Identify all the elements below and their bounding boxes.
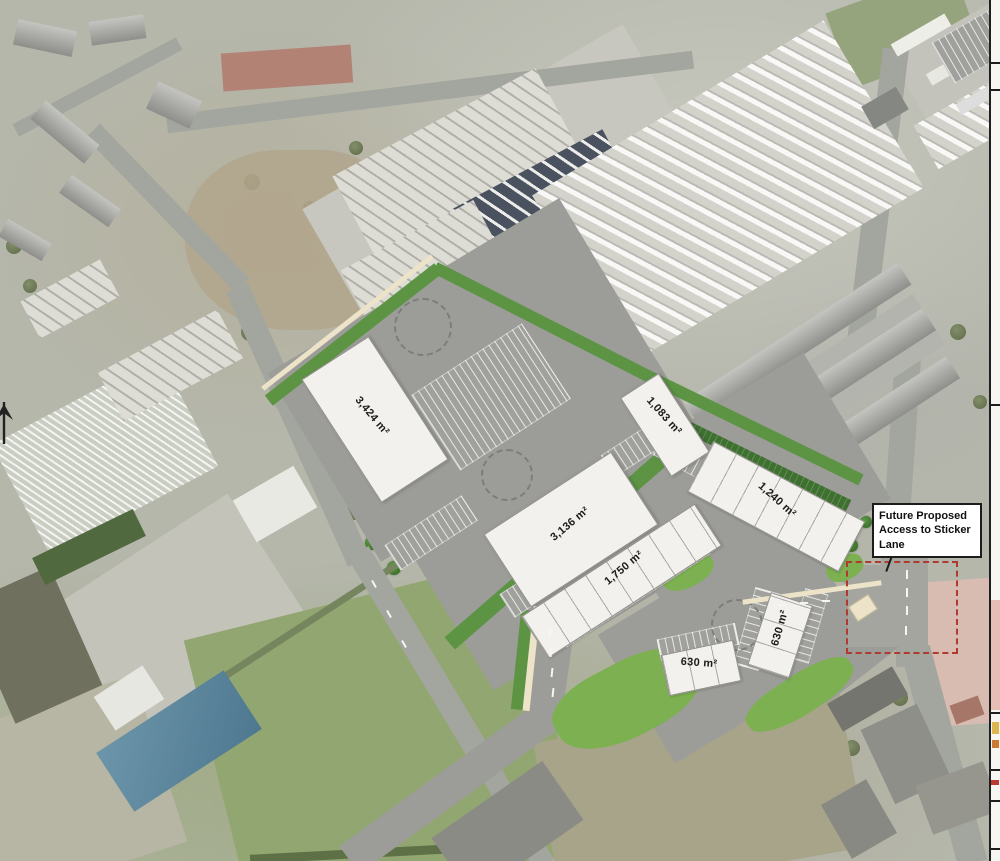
- tree: [973, 395, 987, 409]
- legend-swatch: [991, 780, 999, 785]
- legend-divider: [989, 848, 1000, 850]
- legend-divider: [989, 769, 1000, 771]
- legend-divider: [989, 62, 1000, 64]
- proposed-access-boundary: [846, 561, 958, 654]
- legend-swatch: [992, 740, 999, 748]
- north-arrow-icon: [0, 400, 17, 446]
- road-marking: [822, 600, 830, 602]
- legend-swatch: [991, 600, 1000, 710]
- turning-circle: [481, 449, 533, 501]
- legend-divider: [989, 404, 1000, 406]
- legend-swatch: [992, 722, 999, 734]
- future-access-annotation: Future Proposed Access to Sticker Lane: [872, 503, 982, 558]
- tree: [23, 279, 37, 293]
- legend-divider: [989, 89, 1000, 91]
- tree: [349, 141, 363, 155]
- tree: [950, 324, 966, 340]
- legend-divider: [989, 800, 1000, 802]
- road-marking: [800, 602, 808, 604]
- turning-circle: [394, 298, 452, 356]
- legend-divider: [989, 712, 1000, 714]
- site-plan-map: 3,424 m² 3,136 m² 1,750 m² 1,083 m² 1,24…: [0, 0, 1000, 861]
